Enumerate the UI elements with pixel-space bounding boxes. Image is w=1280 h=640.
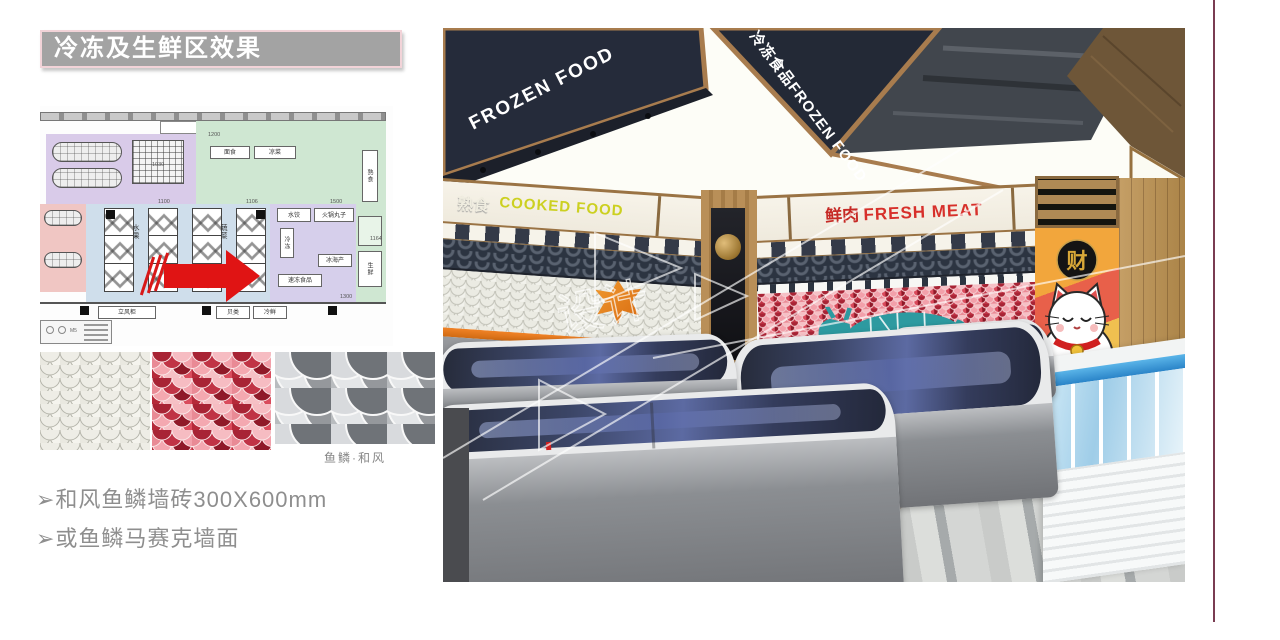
watermark-overlay: 设计	[443, 28, 1185, 582]
column-marker	[256, 210, 265, 219]
floorplan-box: 贝类	[216, 306, 250, 319]
oval-counter	[44, 252, 82, 268]
floorplan-box: 冰海产	[318, 254, 352, 267]
floorplan-label: 水果	[130, 224, 140, 240]
interior-rendering: FROZEN FOOD 冷冻食品FROZEN FOOD 熟食 COOKED FO…	[443, 28, 1185, 582]
floorplan-label: M5	[70, 328, 77, 334]
dimension: 1100	[158, 199, 170, 205]
floorplan-box: 面食	[210, 146, 250, 159]
red-arrow	[164, 250, 262, 302]
slide-right-border	[1213, 0, 1215, 622]
slide-canvas: 冷冻及生鲜区效果 面包架 面包架 面食 凉菜 熟食 水果 蔬菜 水饺 火锅丸子 …	[0, 0, 1280, 640]
gray-scale-marble-swatch	[275, 352, 435, 444]
floorplan-top-shelves	[40, 112, 386, 121]
swatch-caption: 鱼鳞·和风	[275, 449, 435, 466]
bullet-point: ➢或鱼鳞马赛克墙面	[36, 521, 436, 553]
watermark-text: 设计	[552, 273, 653, 343]
oval-counter	[44, 210, 82, 226]
pink-scale-mosaic-swatch	[152, 352, 271, 450]
floorplan-box: 速冻食品	[278, 274, 322, 287]
shelf-column	[104, 208, 134, 292]
dimension: 1030	[152, 162, 164, 168]
oval-counter	[52, 142, 122, 162]
floorplan-label: 蔬菜	[218, 224, 228, 240]
floorplan-box: 水饺	[277, 208, 311, 222]
dimension: 1500	[330, 199, 342, 205]
column-marker	[202, 306, 211, 315]
column-marker	[106, 210, 115, 219]
floorplan-box: 凉菜	[254, 146, 296, 159]
column-marker	[80, 306, 89, 315]
oval-counter	[52, 168, 122, 188]
wall-line	[40, 302, 386, 304]
dimension: 1164	[370, 236, 382, 242]
stairs	[84, 323, 108, 341]
dimension: 1106	[246, 199, 258, 205]
red-arrow-shaft	[164, 264, 226, 288]
floorplan-box: 火锅丸子	[314, 208, 354, 222]
white-scale-tile-swatch	[40, 352, 150, 450]
floorplan-box: 熟食	[362, 150, 378, 202]
floorplan-box: 冷冻	[280, 228, 294, 258]
bullet-point: ➢和风鱼鳞墙砖300X600mm	[36, 482, 436, 514]
floorplan-box: 立风柜	[98, 306, 156, 319]
floor-plan: 面包架 面包架 面食 凉菜 熟食 水果 蔬菜 水饺 火锅丸子 冷冻 冰海产 速冻…	[40, 106, 393, 346]
column-marker	[328, 306, 337, 315]
floorplan-box: 冷鲜	[253, 306, 287, 319]
restroom-fixture	[46, 326, 54, 334]
page-title: 冷冻及生鲜区效果	[40, 30, 402, 68]
dimension: 1300	[340, 294, 352, 300]
dimension: 1200	[208, 132, 220, 138]
red-arrow-head	[226, 250, 260, 302]
restroom-fixture	[58, 326, 66, 334]
floorplan-box: 生鲜	[358, 251, 382, 287]
